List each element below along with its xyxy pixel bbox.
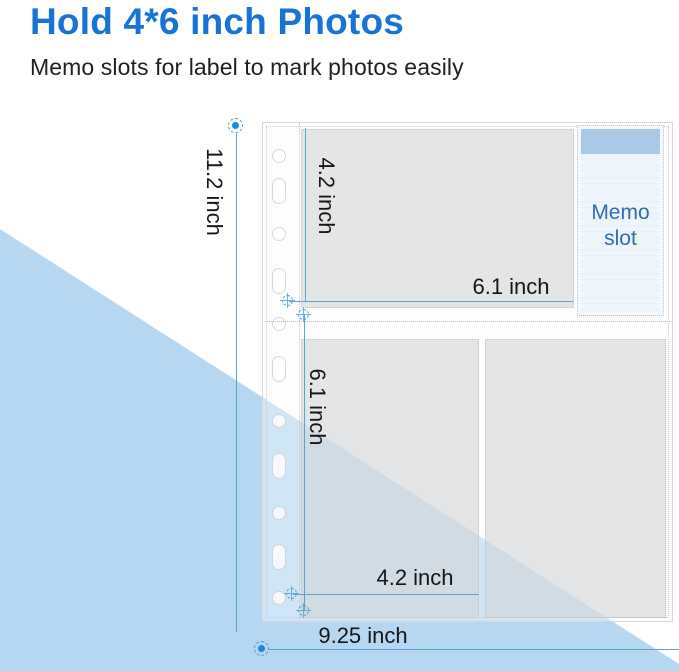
dimension-line-top-pocket-height bbox=[305, 128, 306, 302]
binder-hole bbox=[272, 317, 286, 331]
dimension-label-bottom-pocket-width: 4.2 inch bbox=[376, 565, 453, 591]
dimension-endpoint-icon bbox=[254, 641, 269, 656]
binder-hole bbox=[272, 356, 286, 382]
dimension-line-sheet-height bbox=[236, 133, 237, 632]
binder-hole bbox=[272, 414, 286, 428]
dimension-line-sheet-width bbox=[268, 649, 679, 650]
memo-slot-label-line1: Memo bbox=[591, 200, 649, 226]
dimension-label-bottom-pocket-height: 6.1 inch bbox=[304, 368, 330, 445]
binder-hole bbox=[272, 227, 286, 241]
binder-strip bbox=[263, 123, 300, 621]
binder-hole bbox=[272, 149, 286, 163]
binder-hole bbox=[272, 178, 286, 204]
binder-hole bbox=[272, 506, 286, 520]
page-title: Hold 4*6 inch Photos bbox=[30, 1, 404, 43]
dimension-target-icon bbox=[286, 588, 297, 599]
binder-hole bbox=[272, 453, 286, 479]
binder-hole bbox=[272, 544, 286, 570]
memo-slot-pocket: Memo slot bbox=[577, 125, 664, 316]
product-diagram-canvas: Hold 4*6 inch Photos Memo slots for labe… bbox=[0, 0, 679, 671]
memo-slot-header bbox=[581, 129, 660, 154]
memo-slot-label-line2: slot bbox=[591, 226, 649, 252]
dimension-label-sheet-width: 9.25 inch bbox=[318, 623, 407, 649]
dimension-target-icon bbox=[282, 295, 293, 306]
bottom-right-photo-pocket bbox=[485, 339, 666, 618]
dimension-label-top-pocket-height: 4.2 inch bbox=[313, 157, 339, 234]
dimension-line-top-pocket-width bbox=[289, 301, 573, 302]
dimension-line-bottom-pocket-width bbox=[293, 594, 479, 595]
dimension-label-sheet-height: 11.2 inch bbox=[201, 148, 227, 236]
dimension-target-icon bbox=[298, 605, 309, 616]
dimension-line-bottom-pocket-height bbox=[304, 315, 305, 611]
binder-hole bbox=[272, 268, 286, 294]
dimension-target-icon bbox=[298, 309, 309, 320]
memo-slot-label: Memo slot bbox=[591, 200, 649, 252]
memo-slot-body: Memo slot bbox=[581, 154, 660, 312]
dimension-endpoint-icon bbox=[228, 118, 243, 133]
middle-seam bbox=[265, 321, 670, 322]
dimension-label-top-pocket-width: 6.1 inch bbox=[472, 274, 549, 300]
page-subtitle: Memo slots for label to mark photos easi… bbox=[30, 54, 464, 81]
